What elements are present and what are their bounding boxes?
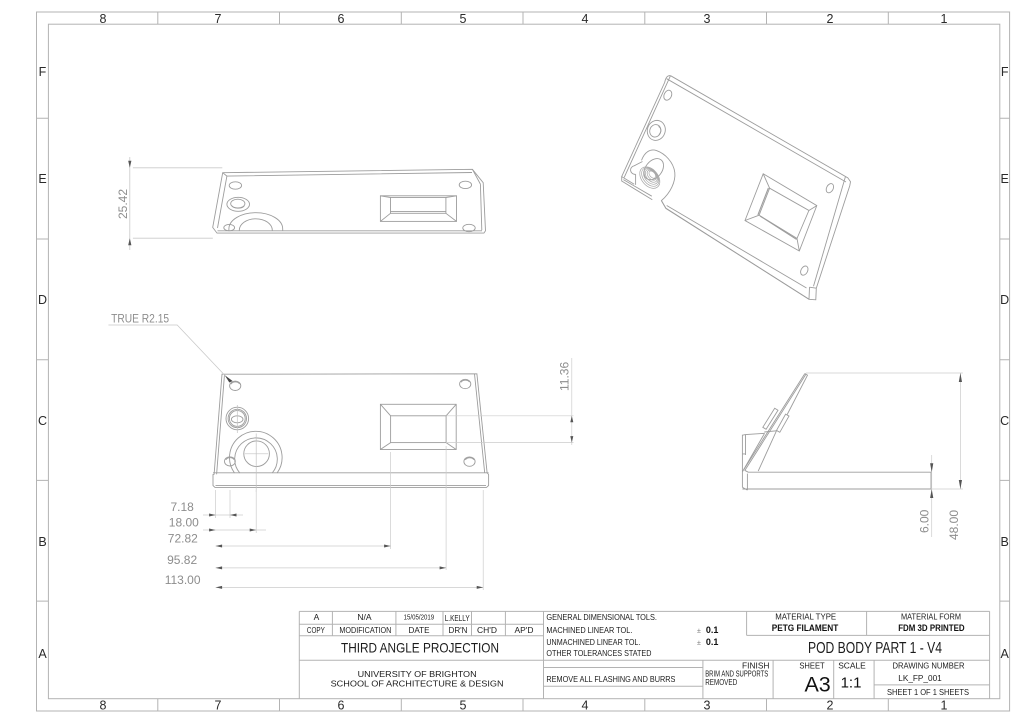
svg-text:E: E — [38, 172, 46, 186]
svg-text:11.36: 11.36 — [558, 362, 572, 391]
svg-text:8: 8 — [100, 699, 107, 713]
svg-text:TRUE R2.15: TRUE R2.15 — [111, 311, 169, 325]
svg-text:7: 7 — [215, 699, 222, 713]
svg-text:2: 2 — [827, 12, 834, 26]
svg-text:A: A — [38, 647, 47, 661]
svg-text:F: F — [39, 65, 47, 79]
svg-text:1: 1 — [941, 12, 948, 26]
svg-text:MATERIAL TYPE: MATERIAL TYPE — [775, 612, 836, 622]
svg-text:COPY: COPY — [307, 625, 325, 635]
svg-text:PETG FILAMENT: PETG FILAMENT — [772, 623, 839, 633]
svg-text:CH'D: CH'D — [477, 625, 497, 635]
svg-text:113.00: 113.00 — [165, 573, 201, 587]
svg-text:MACHINED LINEAR TOL.: MACHINED LINEAR TOL. — [546, 625, 632, 635]
svg-text:F: F — [1001, 65, 1009, 79]
svg-text:OTHER TOLERANCES STATED: OTHER TOLERANCES STATED — [546, 648, 651, 658]
svg-text:REMOVED: REMOVED — [705, 678, 737, 687]
svg-text:DRAWING NUMBER: DRAWING NUMBER — [893, 660, 965, 670]
svg-text:MATERIAL FORM: MATERIAL FORM — [901, 612, 961, 622]
svg-text:THIRD ANGLE PROJECTION: THIRD ANGLE PROJECTION — [341, 640, 499, 656]
svg-text:95.82: 95.82 — [167, 553, 197, 567]
svg-text:POD BODY PART 1 - V4: POD BODY PART 1 - V4 — [808, 640, 942, 657]
svg-text:A: A — [314, 612, 320, 622]
svg-text:7.18: 7.18 — [171, 500, 195, 514]
svg-text:SCALE: SCALE — [838, 660, 866, 670]
svg-text:C: C — [1000, 414, 1009, 428]
svg-text:2: 2 — [827, 699, 834, 713]
svg-text:AP'D: AP'D — [515, 625, 534, 635]
svg-text:8: 8 — [100, 12, 107, 26]
svg-text:7: 7 — [215, 12, 222, 26]
svg-text:DATE: DATE — [409, 625, 430, 635]
svg-text:SCHOOL OF ARCHITECTURE & DESIG: SCHOOL OF ARCHITECTURE & DESIGN — [331, 679, 504, 689]
svg-text:MODIFICATION: MODIFICATION — [339, 625, 391, 635]
svg-text:6: 6 — [338, 699, 345, 713]
svg-text:6: 6 — [338, 12, 345, 26]
svg-text:3: 3 — [704, 12, 711, 26]
svg-text:E: E — [1001, 172, 1009, 186]
svg-text:±: ± — [697, 640, 701, 647]
svg-text:B: B — [38, 535, 46, 549]
svg-text:0.1: 0.1 — [706, 637, 719, 647]
svg-text:25.42: 25.42 — [116, 189, 130, 219]
svg-text:A: A — [1001, 647, 1010, 661]
svg-text:GENERAL DIMENSIONAL TOLS.: GENERAL DIMENSIONAL TOLS. — [546, 612, 657, 622]
svg-text:FDM 3D PRINTED: FDM 3D PRINTED — [898, 623, 965, 633]
svg-text:D: D — [38, 293, 47, 307]
svg-text:5: 5 — [460, 699, 467, 713]
svg-text:15/05/2019: 15/05/2019 — [404, 613, 435, 622]
svg-text:D: D — [1000, 293, 1009, 307]
svg-text:A3: A3 — [804, 673, 830, 697]
svg-text:REMOVE ALL FLASHING AND BURRS: REMOVE ALL FLASHING AND BURRS — [546, 674, 675, 684]
svg-text:LK_FP_001: LK_FP_001 — [898, 673, 942, 683]
svg-text:6.00: 6.00 — [918, 509, 932, 533]
svg-text:4: 4 — [582, 699, 589, 713]
svg-text:18.00: 18.00 — [169, 516, 199, 530]
svg-text:72.82: 72.82 — [168, 532, 198, 546]
svg-text:L.KELLY: L.KELLY — [445, 613, 470, 623]
svg-text:1: 1 — [941, 699, 948, 713]
svg-text:SHEET: SHEET — [799, 660, 824, 670]
svg-text:1:1: 1:1 — [841, 675, 862, 692]
svg-text:B: B — [1001, 535, 1009, 549]
svg-text:5: 5 — [460, 12, 467, 26]
svg-text:DR'N: DR'N — [449, 625, 468, 635]
svg-text:0.1: 0.1 — [706, 625, 719, 635]
svg-text:UNIVERSITY OF BRIGHTON: UNIVERSITY OF BRIGHTON — [358, 669, 477, 679]
svg-text:48.00: 48.00 — [947, 510, 961, 540]
svg-text:4: 4 — [582, 12, 589, 26]
svg-text:SHEET 1 OF 1 SHEETS: SHEET 1 OF 1 SHEETS — [887, 687, 969, 697]
svg-text:N/A: N/A — [357, 612, 372, 622]
svg-text:C: C — [38, 414, 47, 428]
svg-text:3: 3 — [704, 699, 711, 713]
svg-text:UNMACHINED LINEAR TOL.: UNMACHINED LINEAR TOL. — [546, 637, 640, 647]
svg-text:±: ± — [697, 628, 701, 635]
